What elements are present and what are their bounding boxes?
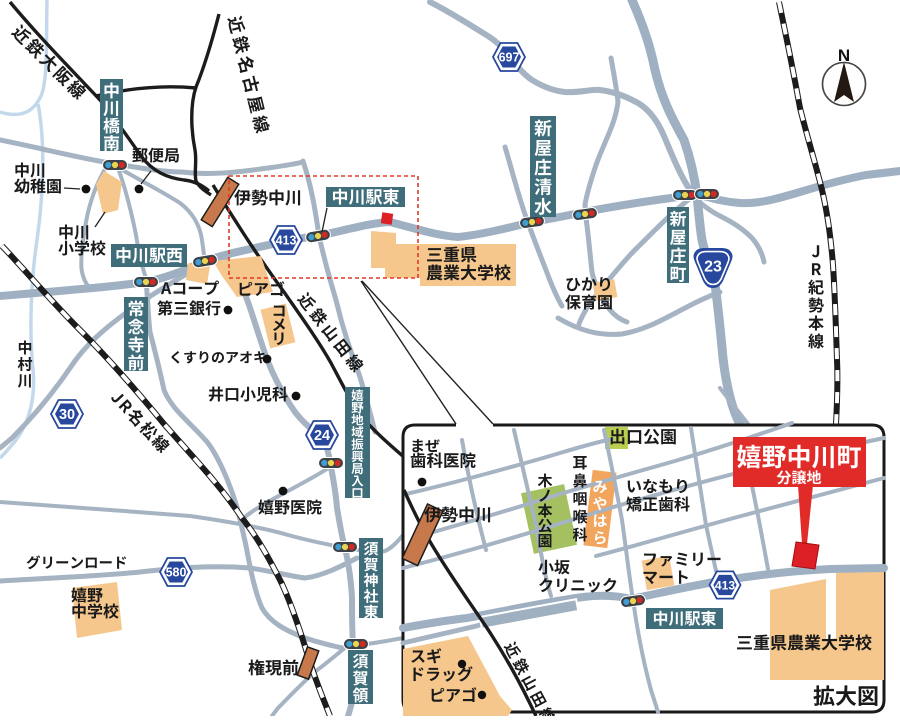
svg-text:23: 23 [704,259,722,276]
svg-text:697: 697 [499,50,520,64]
svg-text:24: 24 [314,428,330,444]
svg-text:413: 413 [276,233,297,247]
svg-text:30: 30 [59,407,75,423]
svg-text:N: N [838,46,850,65]
svg-text:413: 413 [715,578,735,592]
svg-text:580: 580 [166,565,187,579]
